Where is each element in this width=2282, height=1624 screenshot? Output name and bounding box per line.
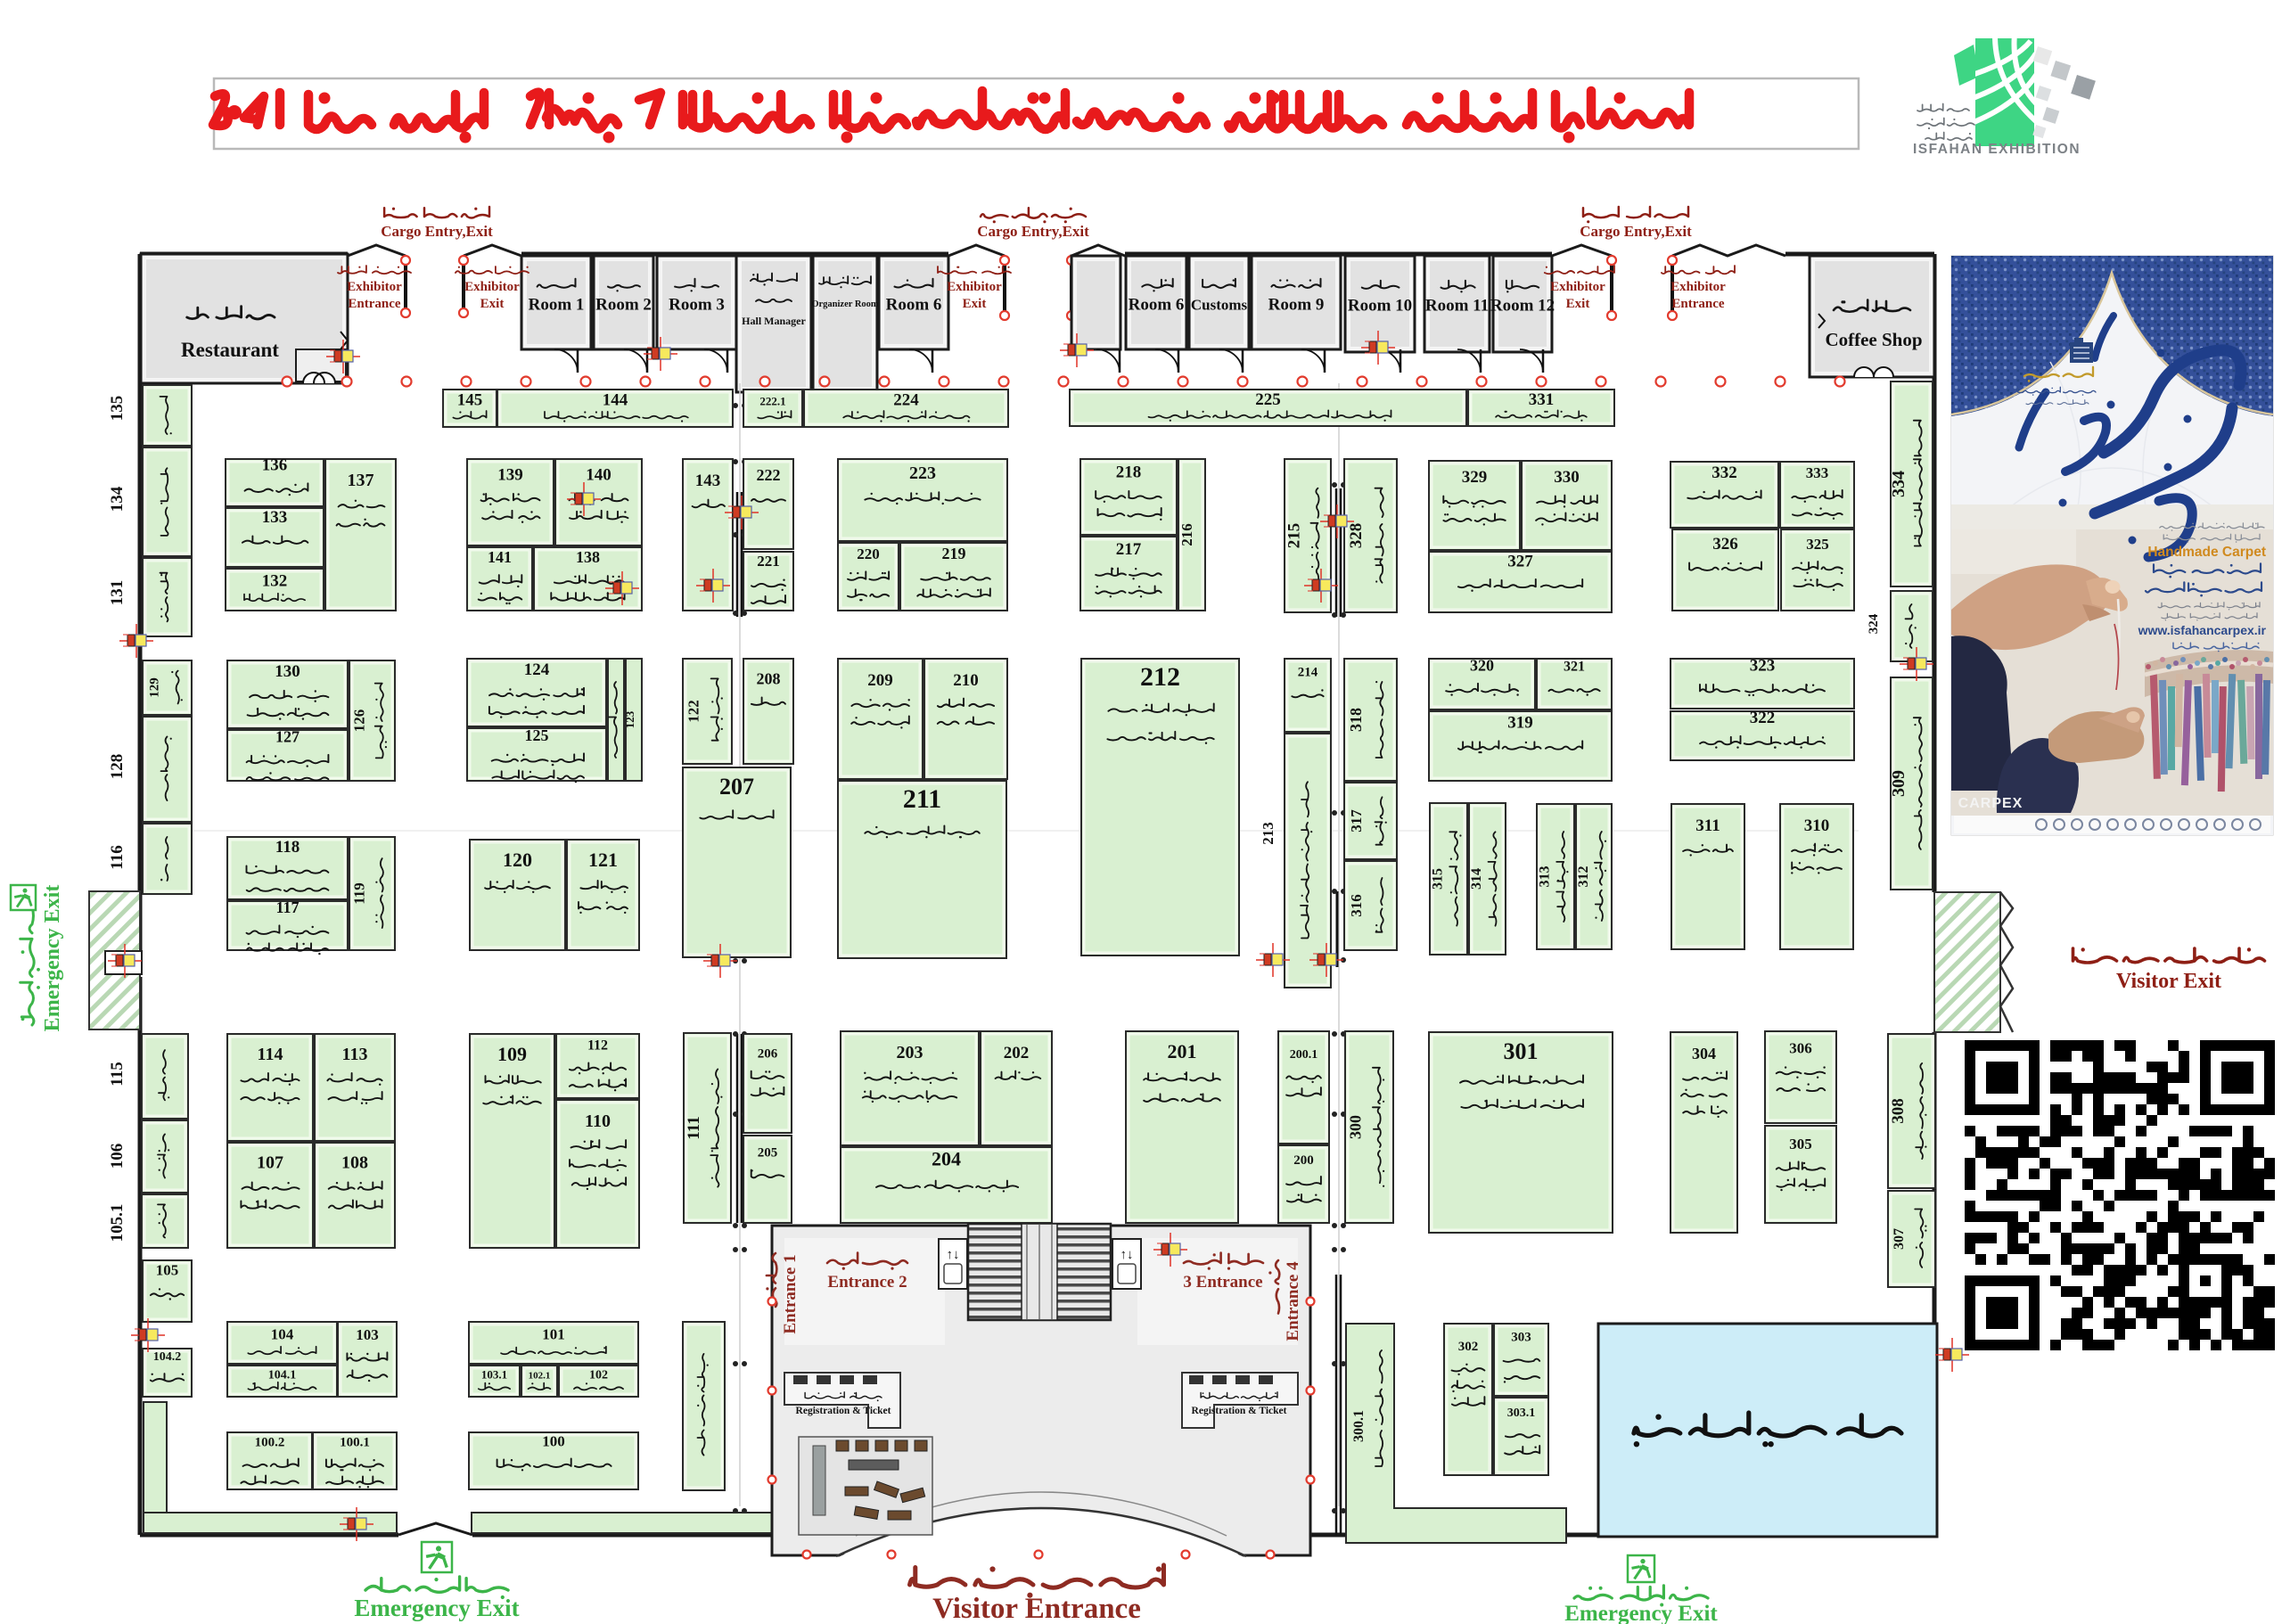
svg-text:Room 12: Room 12: [1490, 297, 1555, 316]
svg-text:121: 121: [588, 849, 618, 871]
svg-text:Entrance: Entrance: [1671, 297, 1725, 311]
svg-text:214: 214: [1298, 666, 1318, 680]
svg-text:334: 334: [1889, 471, 1909, 497]
svg-text:103.1: 103.1: [481, 1368, 507, 1382]
svg-text:Room 2: Room 2: [595, 296, 652, 315]
svg-text:Exhibitor: Exhibitor: [347, 280, 402, 294]
svg-text:Room 10: Room 10: [1348, 297, 1412, 316]
svg-text:208: 208: [757, 669, 781, 687]
svg-text:300.1: 300.1: [1351, 1410, 1367, 1442]
svg-text:Exhibitor: Exhibitor: [464, 280, 520, 294]
svg-text:136: 136: [262, 456, 288, 475]
svg-text:133: 133: [262, 508, 288, 527]
svg-text:Emergency Exit: Emergency Exit: [354, 1595, 519, 1621]
svg-text:Visitor Exit: Visitor Exit: [2116, 970, 2221, 993]
svg-text:321: 321: [1564, 660, 1585, 675]
svg-text:130: 130: [275, 662, 300, 681]
svg-text:Exit: Exit: [1566, 297, 1590, 311]
svg-text:139: 139: [497, 465, 523, 484]
svg-text:329: 329: [1462, 468, 1488, 487]
svg-text:205: 205: [758, 1146, 778, 1161]
svg-text:Customs: Customs: [1191, 297, 1248, 314]
svg-text:313: 313: [1537, 866, 1552, 888]
svg-text:304: 304: [1692, 1045, 1716, 1062]
svg-text:113: 113: [342, 1045, 368, 1064]
svg-text:Room 6: Room 6: [886, 296, 942, 315]
svg-text:123: 123: [623, 710, 636, 728]
svg-text:211: 211: [903, 784, 941, 814]
svg-text:Emergency Exit: Emergency Exit: [41, 885, 64, 1032]
svg-text:302: 302: [1458, 1340, 1479, 1354]
svg-text:201: 201: [1168, 1040, 1197, 1062]
svg-text:314: 314: [1469, 868, 1484, 890]
svg-text:323: 323: [1750, 656, 1776, 675]
svg-text:Exhibitor: Exhibitor: [1670, 280, 1726, 294]
svg-text:125: 125: [525, 726, 549, 744]
svg-text:124: 124: [524, 660, 550, 679]
svg-text:220: 220: [857, 545, 880, 562]
svg-text:Coffee Shop: Coffee Shop: [1825, 329, 1922, 350]
svg-text:Restaurant: Restaurant: [181, 339, 279, 361]
svg-text:305: 305: [1789, 1136, 1812, 1152]
svg-text:100.1: 100.1: [340, 1435, 370, 1449]
svg-text:221: 221: [757, 553, 780, 570]
svg-text:105: 105: [156, 1262, 179, 1279]
svg-text:Entrance 2: Entrance 2: [827, 1273, 907, 1292]
svg-text:Registration & Ticket: Registration & Ticket: [796, 1406, 891, 1416]
svg-text:331: 331: [1529, 390, 1555, 409]
svg-text:Room 9: Room 9: [1268, 296, 1325, 315]
svg-text:100: 100: [542, 1432, 565, 1449]
svg-text:ISFAHAN EXHIBITION: ISFAHAN EXHIBITION: [1913, 142, 2081, 157]
svg-text:132: 132: [262, 572, 288, 591]
svg-text:134: 134: [108, 486, 127, 512]
svg-text:www.isfahancarpex.ir: www.isfahancarpex.ir: [2138, 623, 2267, 637]
svg-text:Registration & Ticket: Registration & Ticket: [1192, 1406, 1287, 1416]
svg-text:Cargo Entry,Exit: Cargo Entry,Exit: [381, 223, 493, 240]
svg-text:Handmade Carpet: Handmade Carpet: [2147, 545, 2266, 560]
svg-text:209: 209: [867, 671, 893, 690]
svg-text:Room 3: Room 3: [669, 296, 725, 315]
svg-text:324: 324: [1867, 613, 1881, 634]
svg-text:116: 116: [108, 845, 127, 869]
svg-text:328: 328: [1347, 523, 1366, 549]
svg-text:311: 311: [1695, 816, 1720, 835]
svg-text:Exit: Exit: [963, 297, 987, 311]
svg-text:303: 303: [1511, 1330, 1531, 1344]
svg-text:3 Entrance: 3 Entrance: [1183, 1273, 1262, 1292]
svg-text:109: 109: [497, 1043, 527, 1065]
svg-text:103: 103: [356, 1326, 379, 1343]
svg-text:204: 204: [932, 1147, 961, 1169]
svg-text:143: 143: [695, 472, 721, 490]
svg-text:218: 218: [1116, 463, 1142, 481]
svg-text:110: 110: [585, 1111, 611, 1131]
svg-text:Entrance 1: Entrance 1: [781, 1254, 800, 1333]
svg-text:318: 318: [1347, 708, 1365, 732]
svg-text:137: 137: [348, 471, 374, 490]
svg-text:216: 216: [1178, 523, 1195, 546]
svg-text:Organizer Room: Organizer Room: [811, 299, 879, 309]
svg-text:105.1: 105.1: [108, 1204, 127, 1243]
svg-text:↑↓: ↑↓: [1120, 1247, 1134, 1262]
svg-text:Entrance 4: Entrance 4: [1284, 1261, 1302, 1341]
svg-text:312: 312: [1576, 866, 1591, 888]
svg-text:Visitor Entrance: Visitor Entrance: [932, 1593, 1141, 1624]
svg-text:301: 301: [1504, 1038, 1539, 1064]
svg-text:212: 212: [1140, 662, 1180, 692]
svg-text:Cargo Entry,Exit: Cargo Entry,Exit: [1580, 223, 1692, 240]
svg-text:330: 330: [1554, 468, 1580, 487]
svg-text:↑↓: ↑↓: [947, 1247, 960, 1262]
svg-text:Exit: Exit: [480, 297, 505, 311]
svg-text:118: 118: [275, 838, 300, 857]
svg-text:222: 222: [757, 466, 781, 484]
svg-text:Cargo Entry,Exit: Cargo Entry,Exit: [977, 223, 1089, 240]
svg-text:122: 122: [685, 700, 702, 723]
svg-text:316: 316: [1348, 894, 1365, 917]
svg-text:Exhibitor: Exhibitor: [1550, 280, 1605, 294]
svg-text:144: 144: [603, 391, 628, 410]
svg-text:332: 332: [1711, 463, 1737, 482]
svg-text:129: 129: [148, 677, 162, 698]
svg-text:202: 202: [1004, 1044, 1030, 1062]
svg-text:131: 131: [108, 580, 127, 606]
svg-text:115: 115: [108, 1062, 127, 1086]
svg-text:138: 138: [576, 548, 600, 566]
svg-text:104.2: 104.2: [153, 1350, 182, 1364]
svg-text:Room 6: Room 6: [1129, 296, 1185, 315]
svg-text:127: 127: [275, 728, 300, 746]
svg-text:213: 213: [1260, 822, 1276, 845]
svg-text:114: 114: [258, 1045, 283, 1064]
svg-text:Room 1: Room 1: [529, 296, 585, 315]
svg-text:108: 108: [341, 1152, 368, 1172]
svg-text:319: 319: [1507, 714, 1533, 733]
svg-text:308: 308: [1889, 1098, 1908, 1124]
svg-text:217: 217: [1116, 540, 1142, 559]
svg-text:140: 140: [586, 465, 612, 484]
svg-text:100.2: 100.2: [255, 1435, 285, 1449]
svg-text:104.1: 104.1: [268, 1369, 297, 1382]
svg-text:141: 141: [488, 548, 512, 566]
svg-text:307: 307: [1892, 1228, 1907, 1250]
svg-text:106: 106: [108, 1144, 127, 1169]
svg-text:CARPEX: CARPEX: [1958, 796, 2023, 811]
svg-text:119: 119: [350, 882, 367, 905]
svg-text:210: 210: [953, 671, 979, 690]
svg-text:203: 203: [897, 1043, 923, 1062]
svg-text:222.1: 222.1: [759, 395, 785, 408]
svg-text:317: 317: [1348, 809, 1365, 833]
svg-text:102: 102: [589, 1369, 608, 1382]
svg-text:Exhibitor: Exhibitor: [947, 280, 1002, 294]
svg-text:320: 320: [1470, 657, 1494, 675]
svg-text:326: 326: [1712, 535, 1738, 554]
svg-text:309: 309: [1889, 770, 1909, 797]
svg-text:219: 219: [942, 545, 966, 562]
svg-text:315: 315: [1430, 868, 1445, 890]
svg-text:102.1: 102.1: [529, 1371, 551, 1382]
svg-text:Emergency Exit: Emergency Exit: [1564, 1602, 1718, 1624]
svg-text:325: 325: [1806, 536, 1829, 553]
svg-text:322: 322: [1750, 709, 1776, 727]
svg-text:225: 225: [1255, 390, 1281, 409]
svg-text:Hall Manager: Hall Manager: [742, 315, 806, 327]
svg-text:126: 126: [350, 709, 367, 733]
svg-text:Entrance: Entrance: [348, 297, 401, 311]
svg-text:Room 11: Room 11: [1425, 297, 1489, 316]
svg-text:107: 107: [257, 1152, 283, 1172]
svg-text:207: 207: [719, 774, 754, 800]
svg-text:104: 104: [271, 1326, 294, 1343]
svg-text:200: 200: [1293, 1153, 1314, 1168]
svg-text:117: 117: [275, 898, 299, 916]
svg-text:145: 145: [457, 391, 483, 410]
svg-text:224: 224: [893, 391, 919, 410]
svg-text:306: 306: [1789, 1040, 1812, 1057]
svg-text:135: 135: [108, 396, 127, 422]
svg-text:303.1: 303.1: [1507, 1407, 1536, 1420]
svg-text:327: 327: [1507, 552, 1533, 570]
svg-text:300: 300: [1346, 1115, 1364, 1139]
svg-text:112: 112: [587, 1038, 608, 1053]
svg-text:111: 111: [685, 1116, 703, 1139]
svg-text:223: 223: [909, 463, 936, 483]
svg-text:101: 101: [542, 1326, 565, 1343]
svg-text:128: 128: [108, 754, 127, 780]
svg-text:310: 310: [1804, 816, 1830, 835]
svg-text:215: 215: [1285, 523, 1304, 549]
svg-text:333: 333: [1806, 464, 1829, 481]
svg-text:206: 206: [758, 1047, 778, 1062]
svg-text:120: 120: [503, 849, 532, 871]
svg-text:200.1: 200.1: [1290, 1048, 1318, 1062]
